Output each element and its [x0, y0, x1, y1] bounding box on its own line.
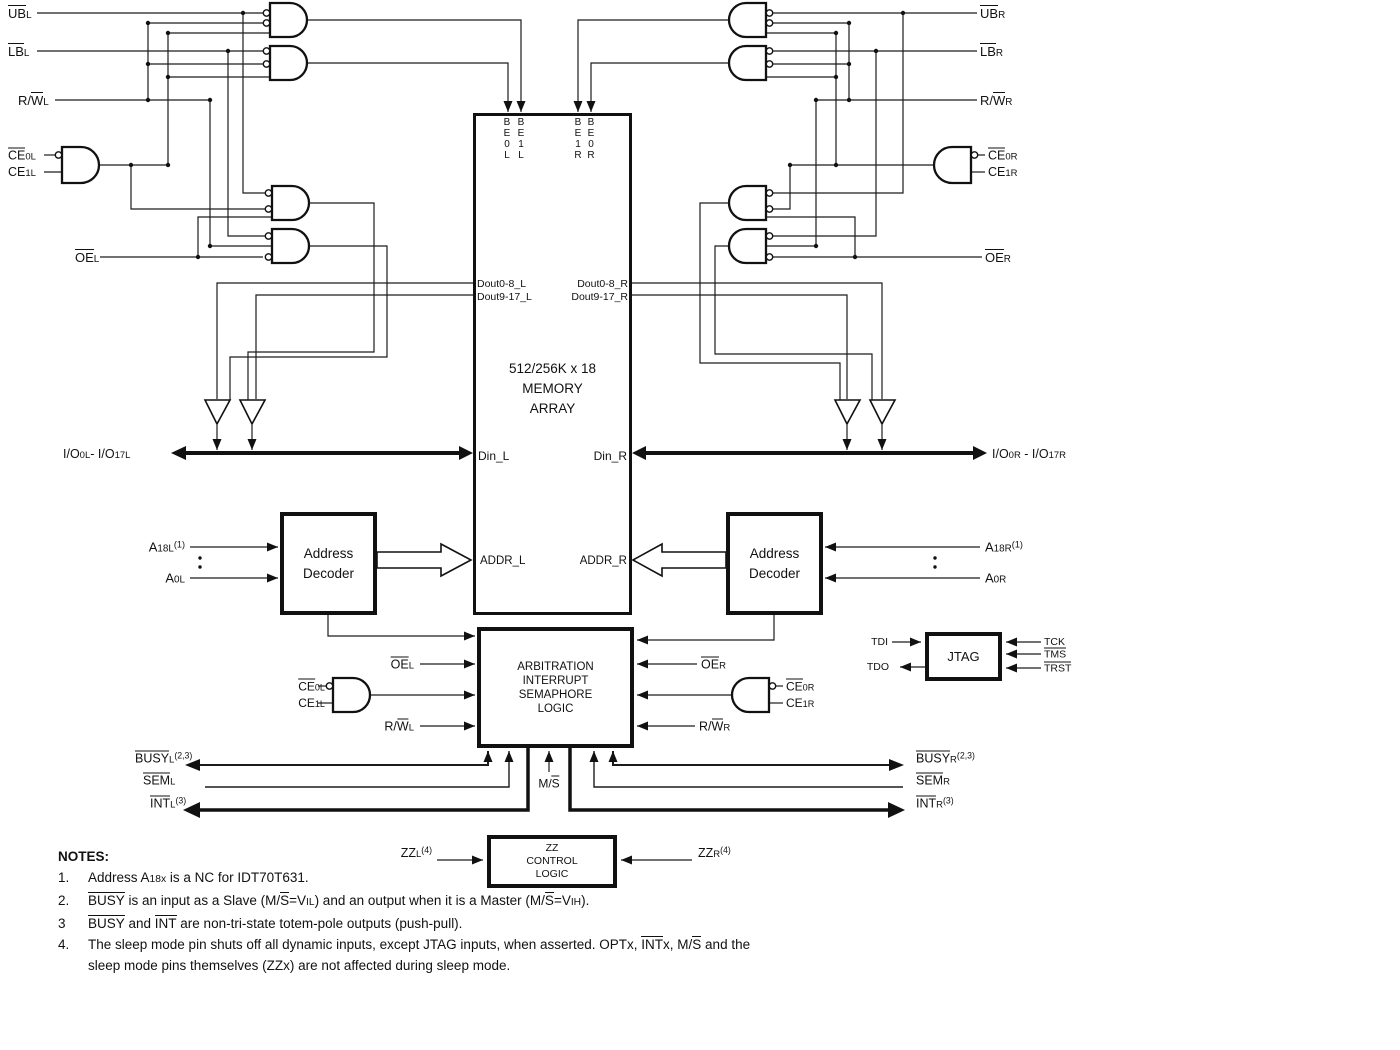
block-diagram-page: 512/256K x 18 MEMORY ARRAY AddressDecode…: [0, 0, 1400, 1050]
notes-items: 1.Address A18x is a NC for IDT70T631.2.B…: [58, 867, 888, 976]
note-number: 4.: [58, 934, 88, 976]
note-item-1: 1.Address A18x is a NC for IDT70T631.: [58, 867, 888, 890]
note-item-4: 4.The sleep mode pin shuts off all dynam…: [58, 934, 888, 976]
note-number: 3: [58, 913, 88, 934]
junction-dots: [129, 11, 937, 569]
note-item-3: 3BUSY and INT are non-tri-state totem-po…: [58, 913, 888, 934]
note-text: Address A18x is a NC for IDT70T631.: [88, 867, 888, 890]
address-bus-arrows: [377, 544, 726, 576]
notes-heading: NOTES:: [58, 849, 888, 864]
and-gates: [62, 3, 971, 712]
note-item-2: 2.BUSY is an input as a Slave (M/S=VIL) …: [58, 890, 888, 913]
status-wires: [199, 748, 903, 810]
note-text: BUSY is an input as a Slave (M/S=VIL) an…: [88, 890, 888, 913]
signal-wires: [37, 13, 985, 703]
io-buses: [171, 446, 987, 460]
output-buffers: [205, 400, 895, 424]
note-number: 2.: [58, 890, 88, 913]
inverter-bubbles: [55, 10, 977, 689]
note-number: 1.: [58, 867, 88, 890]
note-text: BUSY and INT are non-tri-state totem-pol…: [88, 913, 888, 934]
note-text: The sleep mode pin shuts off all dynamic…: [88, 934, 888, 976]
notes-section: NOTES: 1.Address A18x is a NC for IDT70T…: [58, 849, 888, 976]
arrow-wires: [190, 20, 1041, 860]
